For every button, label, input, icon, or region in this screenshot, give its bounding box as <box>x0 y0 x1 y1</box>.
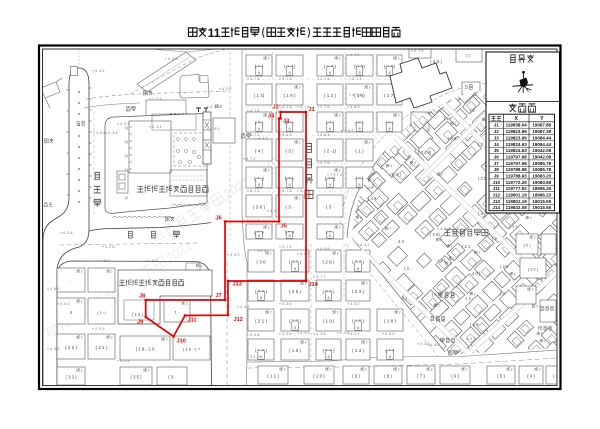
svg-text:J7: J7 <box>216 293 222 299</box>
svg-text:8: 8 <box>388 71 390 75</box>
svg-text:7: 7 <box>372 179 374 183</box>
svg-text:4 .6 0: 4 .6 0 <box>60 302 70 306</box>
svg-text:J14: J14 <box>309 282 319 288</box>
svg-text:( 4 6·: ( 4 6· <box>470 322 480 327</box>
svg-text:4 .6 0: 4 .6 0 <box>100 259 110 263</box>
svg-text:19042.08: 19042.08 <box>532 155 551 160</box>
svg-text:119824.63: 119824.63 <box>506 142 528 147</box>
svg-text:( 3 6·: ( 3 6· <box>448 136 458 141</box>
svg-text:4 .6 9: 4 .6 9 <box>300 252 310 256</box>
svg-text:8: 8 <box>357 267 359 271</box>
svg-text:4 .6 ·: 4 .6 · <box>260 249 269 253</box>
svg-text:19084.44: 19084.44 <box>532 135 551 140</box>
svg-text:8: 8 <box>258 183 260 187</box>
svg-text:J4: J4 <box>494 142 500 147</box>
svg-text:7: 7 <box>541 332 543 336</box>
svg-text:( 3 8 ): ( 3 8 ) <box>253 205 265 210</box>
svg-text:119788.98: 119788.98 <box>506 167 528 172</box>
svg-text:119797.98: 119797.98 <box>506 161 528 166</box>
svg-text:( 1 ·: ( 1 · <box>470 108 477 113</box>
svg-text:( 1 4): ( 1 4) <box>254 93 265 98</box>
svg-text:( 3 0: ( 3 0 <box>256 260 266 265</box>
svg-text:4 .5 5: 4 .5 5 <box>168 57 178 61</box>
svg-text:( 2 ·: ( 2 · <box>478 211 485 216</box>
svg-text:8: 8 <box>327 296 329 300</box>
svg-text:8: 8 <box>358 183 360 187</box>
svg-text:( 4 ): ( 4 ) <box>527 373 535 378</box>
svg-text:7: 7 <box>478 251 480 255</box>
svg-text:( 3 ·: ( 3 · <box>326 205 334 210</box>
svg-text:19083.68: 19083.68 <box>532 180 551 185</box>
svg-text:( 3 ): ( 3 ) <box>285 149 294 154</box>
svg-text:( 3 3 ): ( 3 3 ) <box>66 374 78 379</box>
svg-text:4 .4 2: 4 .4 2 <box>210 105 220 109</box>
svg-text:11: 11 <box>208 26 221 40</box>
svg-text:19085.78: 19085.78 <box>532 167 551 172</box>
svg-text:4 .8 3: 4 .8 3 <box>344 129 354 133</box>
svg-text:8: 8 <box>294 267 296 271</box>
svg-text:4 .7 6: 4 .7 6 <box>414 49 424 53</box>
svg-text:( 3 2 ): ( 3 2 ) <box>528 267 539 272</box>
svg-text:7: 7 <box>449 262 451 266</box>
svg-text:7: 7 <box>389 227 391 231</box>
svg-text:( 4 ·: ( 4 · <box>466 296 473 301</box>
svg-text:( 2 -1): ( 2 -1) <box>324 149 337 154</box>
svg-text:1 .7 6: 1 .7 6 <box>320 77 330 81</box>
svg-text:( 3 ·: ( 3 · <box>168 374 175 379</box>
svg-text:4 .7 2: 4 .7 2 <box>250 189 260 193</box>
svg-text:4 .7 6: 4 .7 6 <box>250 109 260 113</box>
svg-text:4 .3 8: 4 .3 8 <box>316 332 326 336</box>
svg-text:J11: J11 <box>188 318 197 324</box>
svg-text:8: 8 <box>288 183 290 187</box>
svg-text:1 .0 8: 1 .0 8 <box>96 131 106 135</box>
svg-text:19087.38: 19087.38 <box>532 129 551 134</box>
svg-text:7: 7 <box>530 216 532 220</box>
svg-text:( 2 3 ): ( 2 3 ) <box>352 289 364 294</box>
svg-text:( 5 ): ( 5 ) <box>497 373 505 378</box>
svg-text:J11: J11 <box>493 186 501 191</box>
svg-text:7: 7 <box>514 273 516 277</box>
svg-text:4 .7 2: 4 .7 2 <box>246 157 256 161</box>
svg-text:( 7 ): ( 7 ) <box>417 373 425 378</box>
svg-text:4 .5 9: 4 .5 9 <box>385 332 395 336</box>
svg-text:119772.26: 119772.26 <box>506 180 528 185</box>
svg-text:8: 8 <box>288 234 290 238</box>
svg-text:4 .6 9: 4 .6 9 <box>230 253 240 257</box>
svg-text:3 .7 6: 3 .7 6 <box>282 105 292 109</box>
svg-text:7: 7 <box>360 216 362 220</box>
svg-text:J8: J8 <box>494 167 500 172</box>
svg-text:8: 8 <box>329 234 331 238</box>
svg-text:119801.19: 119801.19 <box>506 193 528 198</box>
svg-text:8: 8 <box>288 71 290 75</box>
svg-text:8: 8 <box>258 234 260 238</box>
svg-text:119777.92: 119777.92 <box>506 186 528 191</box>
svg-text:119801.19: 119801.19 <box>506 199 528 204</box>
svg-text:4 .6 0: 4 .6 0 <box>50 287 60 291</box>
svg-text:( 2 ·: ( 2 · <box>500 291 507 296</box>
svg-text:3 .3 4: 3 .3 4 <box>108 131 118 135</box>
svg-text:J14: J14 <box>492 205 500 210</box>
svg-text:( 1 8 ): ( 1 8 ) <box>284 93 296 98</box>
svg-text:7: 7 <box>441 173 443 177</box>
svg-text:8: 8 <box>358 71 360 75</box>
svg-text:( 4 8: ( 4 8 <box>368 196 377 201</box>
svg-text:J5: J5 <box>494 148 500 153</box>
svg-text:( 1 8 ): ( 1 8 ) <box>384 319 396 324</box>
svg-text:4 .3 3: 4 .3 3 <box>120 122 130 126</box>
svg-text:3 2 .8: 3 2 .8 <box>250 355 260 359</box>
svg-text:4 .6 0: 4 .6 0 <box>210 127 220 131</box>
svg-text:4 .4 2: 4 .4 2 <box>360 243 370 247</box>
svg-text:J6: J6 <box>216 216 222 222</box>
svg-text:J10: J10 <box>492 180 500 185</box>
svg-text:( 2 1 ): ( 2 1 ) <box>96 345 108 350</box>
svg-text:7: 7 <box>390 165 392 169</box>
svg-text:7: 7 <box>409 125 411 129</box>
svg-text:4 .7 6: 4 .7 6 <box>320 161 330 165</box>
svg-text:( 3 ·: ( 3 · <box>478 142 485 147</box>
svg-text:8: 8 <box>288 127 290 131</box>
svg-text:3 .3 4: 3 .3 4 <box>152 125 162 129</box>
svg-text:( 9 ): ( 9 ) <box>352 373 360 378</box>
svg-text:8: 8 <box>389 355 391 359</box>
svg-text:8: 8 <box>388 127 390 131</box>
svg-text:4 .8 3: 4 .8 3 <box>350 105 360 109</box>
svg-text:J13: J13 <box>492 199 500 204</box>
svg-text:8: 8 <box>327 355 329 359</box>
svg-text:J2: J2 <box>273 105 279 111</box>
svg-text:1 .7 6: 1 .7 6 <box>250 77 260 81</box>
svg-text:( 2 8: ( 2 8 <box>500 264 509 269</box>
svg-text:19084.44: 19084.44 <box>532 142 551 147</box>
svg-text:5: 5 <box>465 85 468 91</box>
svg-text:4 .4 7: 4 .4 7 <box>258 137 268 141</box>
svg-text:4 .5 9: 4 .5 9 <box>340 331 350 335</box>
svg-text:7: 7 <box>544 339 546 343</box>
svg-text:8: 8 <box>260 296 262 300</box>
svg-text:J9: J9 <box>494 174 500 179</box>
svg-text:119832.08: 119832.08 <box>506 205 528 210</box>
svg-text:7: 7 <box>438 304 440 308</box>
svg-text:4 .5 5: 4 .5 5 <box>50 347 60 351</box>
svg-text:4 .4 8: 4 .4 8 <box>240 305 250 309</box>
svg-text:3 .9 8: 3 .9 8 <box>320 247 330 251</box>
svg-text:4 .4 6: 4 .4 6 <box>430 343 440 347</box>
svg-text:4 .3 6: 4 .3 6 <box>282 302 292 306</box>
svg-text:( 1 0 ): ( 1 0 ) <box>313 373 325 378</box>
svg-text:19042.08: 19042.08 <box>532 148 551 153</box>
svg-text:4 .7 4: 4 .7 4 <box>352 93 362 97</box>
svg-text:119797.98: 119797.98 <box>506 155 528 160</box>
svg-text:3 .9 8: 3 .9 8 <box>282 332 292 336</box>
svg-text:7: 7 <box>454 122 456 126</box>
svg-text:( 2 2 ): ( 2 2 ) <box>65 345 77 350</box>
svg-text:( 3 6): ( 3 6) <box>430 232 440 237</box>
svg-text:1 .7 6: 1 .7 6 <box>320 105 330 109</box>
svg-text:7: 7 <box>536 305 538 309</box>
svg-text:4 .4 6: 4 .4 6 <box>420 342 430 346</box>
svg-text:J9: J9 <box>137 320 143 326</box>
svg-text:( 1 9 |: ( 1 9 | <box>323 319 335 324</box>
svg-text:X: X <box>514 116 518 122</box>
svg-text:8: 8 <box>329 183 331 187</box>
svg-text:( 1 3 ): ( 1 3 ) <box>132 312 144 317</box>
svg-text:( 1 8 - 2 0: ( 1 8 - 2 0 <box>136 347 155 352</box>
svg-text:J3: J3 <box>494 135 500 140</box>
svg-text:( 3 ·: ( 3 · <box>285 205 293 210</box>
svg-text:( 1 ): ( 1 ) <box>355 149 364 154</box>
svg-text:4 .5 5: 4 .5 5 <box>95 327 105 331</box>
svg-text:( 2 1 ): ( 2 1 ) <box>255 319 267 324</box>
svg-text:3 .7 6: 3 .7 6 <box>282 77 292 81</box>
svg-text:19087.88: 19087.88 <box>532 123 551 128</box>
svg-text:8: 8 <box>329 71 331 75</box>
svg-text:7: 7 <box>414 162 416 166</box>
svg-text:( 1 6 - 1 7: ( 1 6 - 1 7 <box>183 347 201 352</box>
svg-text:J6: J6 <box>494 155 500 160</box>
svg-text:( 1 1 ): ( 1 1 ) <box>267 373 279 378</box>
svg-text:( 1 2 ): ( 1 2 ) <box>324 93 336 98</box>
svg-text:4 .7 4: 4 .7 4 <box>350 53 360 57</box>
svg-text:J13: J13 <box>233 282 242 288</box>
svg-text:( 2 8 ): ( 2 8 ) <box>323 260 335 265</box>
svg-text:( 3 ): ( 3 ) <box>438 258 446 263</box>
svg-text:4 .6 ·: 4 .6 · <box>470 337 479 341</box>
svg-text:18996.25: 18996.25 <box>532 186 551 191</box>
svg-text:4 .7 4: 4 .7 4 <box>352 77 362 81</box>
svg-text:( 3 5 ): ( 3 5 ) <box>131 374 143 379</box>
svg-text:4 .6 9: 4 .6 9 <box>440 227 450 231</box>
svg-text:4 .2 8: 4 .2 8 <box>63 231 73 235</box>
svg-text:4 .6 9: 4 .6 9 <box>270 209 280 213</box>
svg-text:119823.99: 119823.99 <box>506 129 528 134</box>
svg-text:T 9 T 4: T 9 T 4 <box>330 173 342 177</box>
svg-text:J2: J2 <box>494 129 500 134</box>
svg-text:19083.23: 19083.23 <box>532 174 551 179</box>
svg-text:J3: J3 <box>283 119 289 125</box>
svg-text:19085.78: 19085.78 <box>532 161 551 166</box>
svg-text:( 2 1: ( 2 1 <box>462 244 471 249</box>
svg-text:( 4 ]: ( 4 ] <box>255 149 263 154</box>
svg-text:7: 7 <box>453 257 455 261</box>
svg-text:( 1 3 ): ( 1 3 ) <box>352 348 364 353</box>
svg-text:119788.93: 119788.93 <box>506 174 528 179</box>
svg-text:J12: J12 <box>234 317 243 323</box>
svg-text:3 .9 8: 3 .9 8 <box>250 333 260 337</box>
svg-text:119838.04: 119838.04 <box>506 123 528 128</box>
svg-text:4 .7 5: 4 .7 5 <box>282 189 292 193</box>
svg-text:J7: J7 <box>494 161 500 166</box>
svg-text:8: 8 <box>294 326 296 330</box>
svg-text:1 .7 4: 1 .7 4 <box>282 245 292 249</box>
svg-text:1 .0 3: 1 .0 3 <box>152 97 162 101</box>
svg-text:( 2 ·: ( 2 · <box>492 236 499 241</box>
svg-text:18996.23: 18996.23 <box>532 193 551 198</box>
svg-text:4 .4 2: 4 .4 2 <box>95 69 105 73</box>
svg-text:·: · <box>70 279 72 284</box>
svg-text:3 .7 7: 3 .7 7 <box>316 275 326 279</box>
svg-text:4 .4 6: 4 .4 6 <box>508 225 518 229</box>
svg-text:4 .4 2: 4 .4 2 <box>350 332 360 336</box>
svg-text:J4: J4 <box>268 114 275 120</box>
svg-text:4 .7 5: 4 .7 5 <box>300 189 310 193</box>
svg-text:J1: J1 <box>494 123 500 128</box>
svg-text:7: 7 <box>440 238 442 242</box>
svg-text:( 3 ·: ( 3 · <box>404 266 411 271</box>
svg-text:4 .7 2: 4 .7 2 <box>250 133 260 137</box>
svg-text:4 .8 3: 4 .8 3 <box>320 133 330 137</box>
svg-text:4 .4 2: 4 .4 2 <box>300 331 310 335</box>
svg-text:4 .6 9: 4 .6 9 <box>282 133 292 137</box>
svg-text:( 1 ·: ( 1 · <box>465 52 472 57</box>
svg-text:( 8 ): ( 8 ) <box>384 373 392 378</box>
svg-text:( 2 ·: ( 2 · <box>444 116 451 121</box>
svg-text:8: 8 <box>358 127 360 131</box>
svg-text:4 .4 2: 4 .4 2 <box>350 302 360 306</box>
svg-text:4 3: 4 3 <box>398 239 404 244</box>
svg-text:1 ·: 1 · <box>175 310 180 315</box>
svg-text:8: 8 <box>329 127 331 131</box>
svg-text:Y: Y <box>540 116 544 122</box>
svg-text:8: 8 <box>357 326 359 330</box>
svg-text:( 5 0 ): ( 5 0 ) <box>390 172 402 177</box>
svg-text:( 3 4 9): ( 3 4 9) <box>418 150 432 155</box>
svg-text:119824.63: 119824.63 <box>506 148 528 153</box>
svg-text:4 .6 0: 4 .6 0 <box>148 259 158 263</box>
svg-text:4 .2 6: 4 .2 6 <box>105 245 115 249</box>
svg-text:( 2 5 ): ( 2 5 ) <box>289 289 301 294</box>
svg-text:( 1 5 ): ( 1 5 ) <box>289 348 301 353</box>
svg-text:( 4 3 ): ( 4 3 ) <box>430 59 442 64</box>
svg-text:4 .5 6: 4 .5 6 <box>222 87 232 91</box>
svg-text:7: 7 <box>451 245 453 249</box>
svg-text:4 0 ): 4 0 ) <box>472 271 481 276</box>
svg-text:7: 7 <box>474 292 476 296</box>
svg-text:119823.99: 119823.99 <box>506 135 528 140</box>
svg-text:8: 8 <box>258 71 260 75</box>
svg-text:19015.55: 19015.55 <box>532 205 551 210</box>
svg-text:( 2 ): ( 2 ) <box>523 243 531 248</box>
svg-text:J5: J5 <box>281 224 287 230</box>
svg-text:J8: J8 <box>139 294 145 300</box>
svg-text:( 1 ·): ( 1 ·) <box>97 310 106 315</box>
svg-text:4 .2 8: 4 .2 8 <box>120 359 130 363</box>
svg-text:J12: J12 <box>492 193 500 198</box>
svg-text:8: 8 <box>260 355 262 359</box>
svg-text:( 6 ): ( 6 ) <box>451 373 459 378</box>
svg-text:19015.55: 19015.55 <box>532 199 551 204</box>
svg-text:J1: J1 <box>309 107 315 113</box>
svg-text:8: 8 <box>258 127 260 131</box>
svg-text:J10: J10 <box>177 339 186 345</box>
